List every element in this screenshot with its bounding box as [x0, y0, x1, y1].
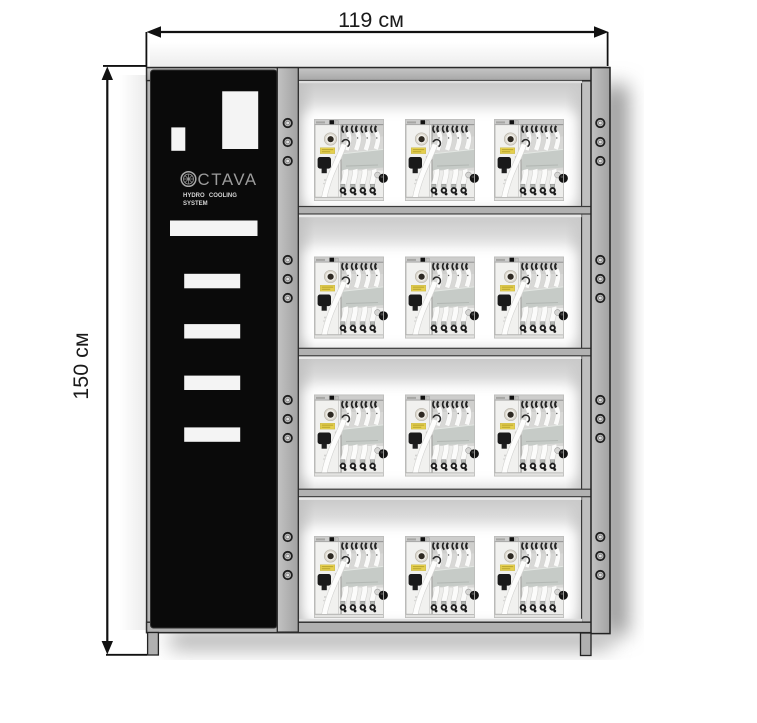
svg-text:HYDRO COOLING: HYDRO COOLING	[183, 193, 237, 199]
svg-text:119 см: 119 см	[338, 8, 404, 32]
svg-text:150 см: 150 см	[69, 332, 93, 399]
svg-text:SYSTEM: SYSTEM	[183, 201, 208, 207]
svg-text:CTAVA: CTAVA	[198, 170, 258, 189]
